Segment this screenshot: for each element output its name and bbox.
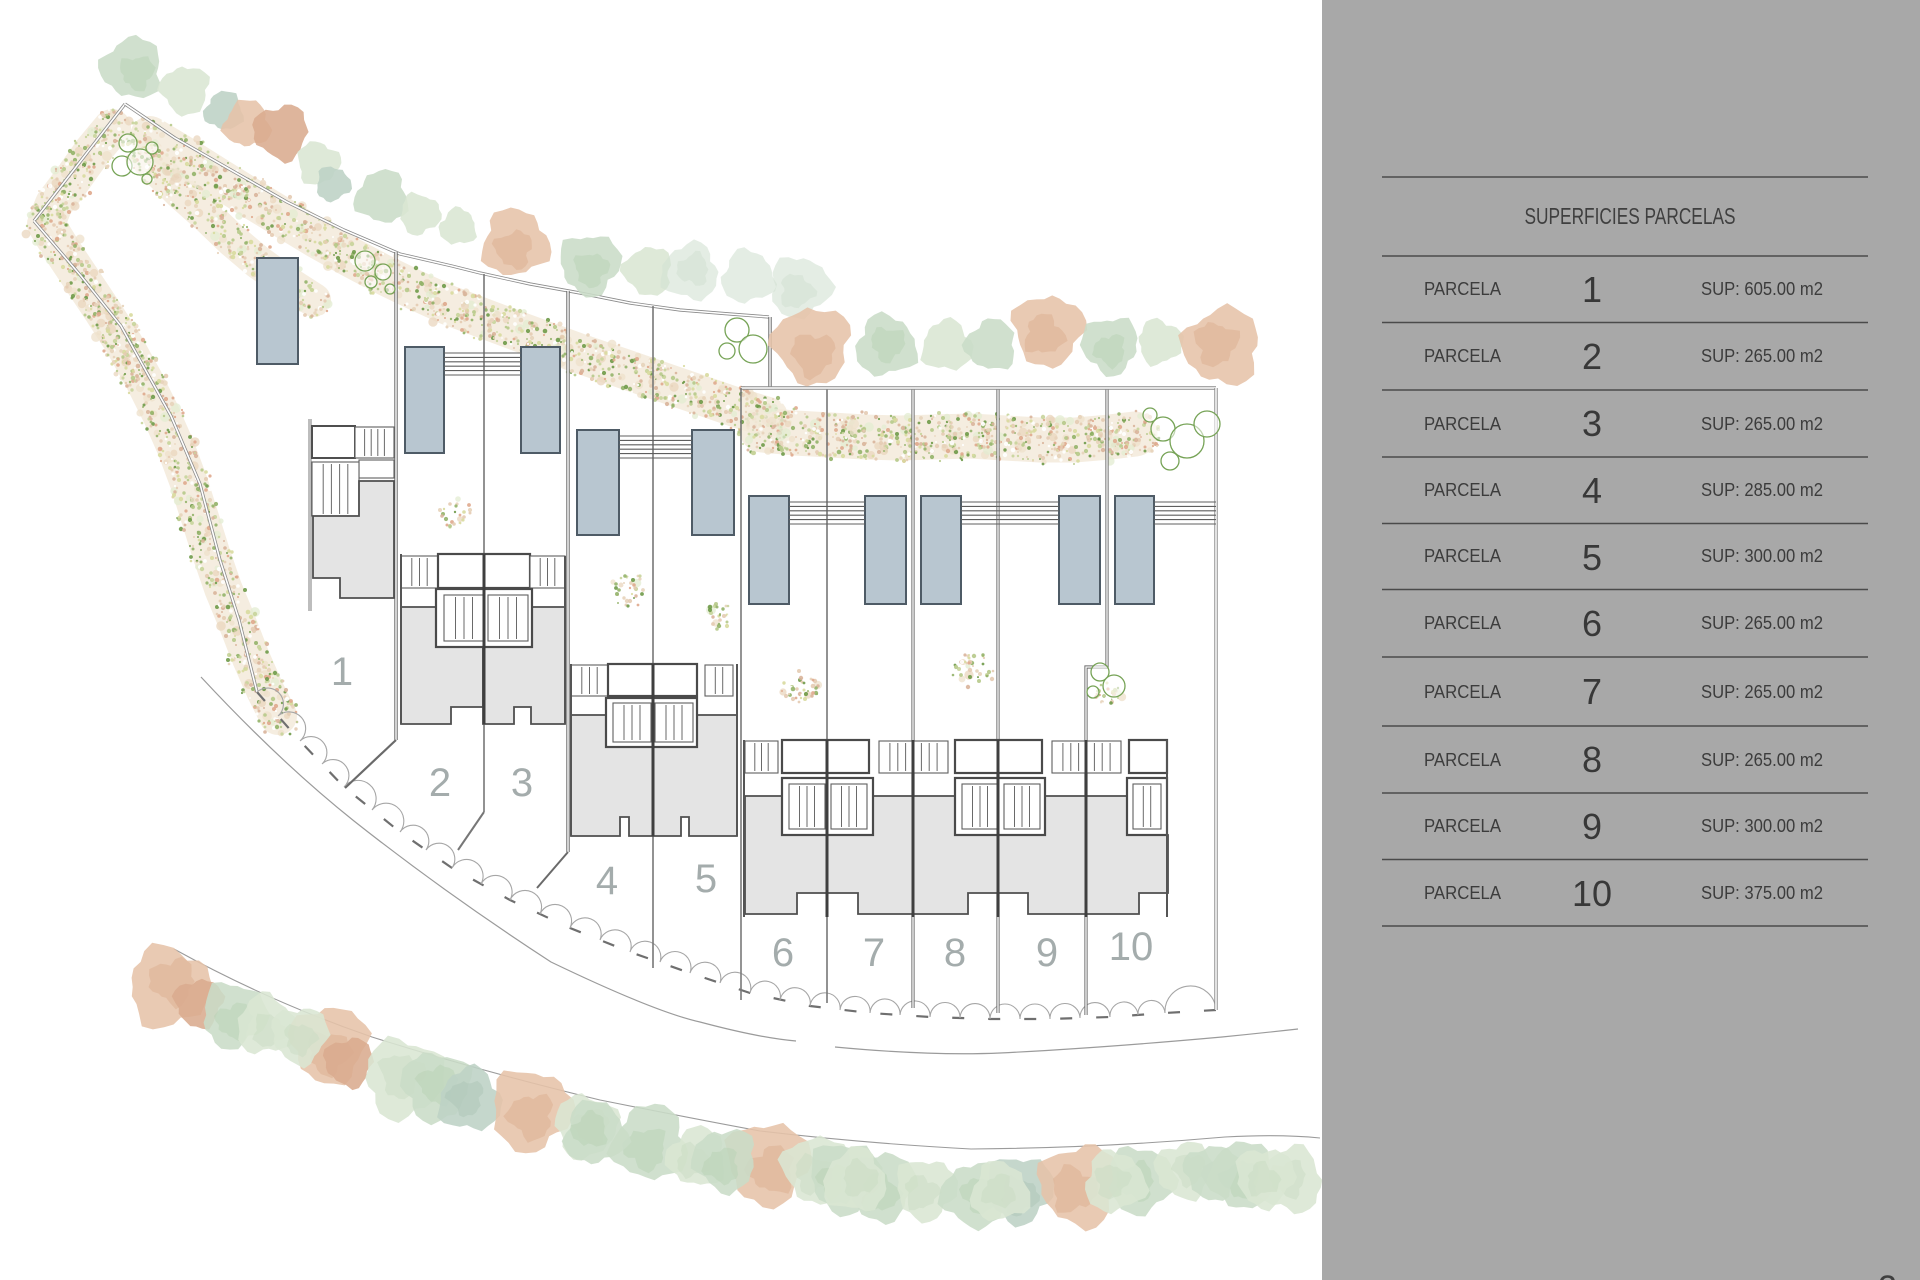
svg-text:1: 1 [1582, 269, 1602, 310]
svg-text:10: 10 [1572, 873, 1612, 914]
svg-text:8: 8 [944, 931, 966, 975]
svg-text:PARCELA: PARCELA [1424, 883, 1501, 903]
svg-text:SUPERFICIES PARCELAS: SUPERFICIES PARCELAS [1525, 203, 1736, 229]
svg-text:9: 9 [1582, 806, 1602, 847]
svg-text:SUP: 265.00 m2: SUP: 265.00 m2 [1701, 750, 1823, 770]
svg-text:7: 7 [1582, 671, 1602, 712]
svg-text:2: 2 [1878, 1269, 1897, 1280]
svg-text:3: 3 [1582, 403, 1602, 444]
svg-text:6: 6 [1582, 603, 1602, 644]
svg-text:8: 8 [1582, 739, 1602, 780]
svg-text:9: 9 [1036, 931, 1058, 975]
svg-text:PARCELA: PARCELA [1424, 682, 1501, 702]
svg-text:10: 10 [1109, 925, 1154, 969]
svg-text:SUP: 265.00 m2: SUP: 265.00 m2 [1701, 613, 1823, 633]
svg-text:SUP: 300.00 m2: SUP: 300.00 m2 [1701, 816, 1823, 836]
svg-text:SUP: 375.00 m2: SUP: 375.00 m2 [1701, 883, 1823, 903]
svg-text:SUP: 300.00 m2: SUP: 300.00 m2 [1701, 546, 1823, 566]
svg-text:PARCELA: PARCELA [1424, 279, 1501, 299]
svg-text:SUP: 605.00 m2: SUP: 605.00 m2 [1701, 279, 1823, 299]
svg-text:SUP: 265.00 m2: SUP: 265.00 m2 [1701, 682, 1823, 702]
svg-text:PARCELA: PARCELA [1424, 414, 1501, 434]
svg-text:6: 6 [772, 931, 794, 975]
svg-text:PARCELA: PARCELA [1424, 816, 1501, 836]
svg-text:1: 1 [331, 650, 353, 694]
svg-text:SUP: 265.00 m2: SUP: 265.00 m2 [1701, 346, 1823, 366]
svg-text:5: 5 [1582, 537, 1602, 578]
svg-text:2: 2 [429, 761, 451, 805]
svg-text:5: 5 [695, 857, 717, 901]
svg-text:4: 4 [1582, 470, 1602, 511]
svg-text:PARCELA: PARCELA [1424, 480, 1501, 500]
svg-text:SUP: 265.00 m2: SUP: 265.00 m2 [1701, 414, 1823, 434]
svg-text:PARCELA: PARCELA [1424, 546, 1501, 566]
svg-text:4: 4 [596, 859, 618, 903]
svg-text:PARCELA: PARCELA [1424, 613, 1501, 633]
svg-text:7: 7 [863, 931, 885, 975]
svg-text:2: 2 [1582, 336, 1602, 377]
svg-text:3: 3 [511, 761, 533, 805]
svg-text:SUP: 285.00 m2: SUP: 285.00 m2 [1701, 480, 1823, 500]
svg-text:PARCELA: PARCELA [1424, 346, 1501, 366]
svg-text:PARCELA: PARCELA [1424, 750, 1501, 770]
